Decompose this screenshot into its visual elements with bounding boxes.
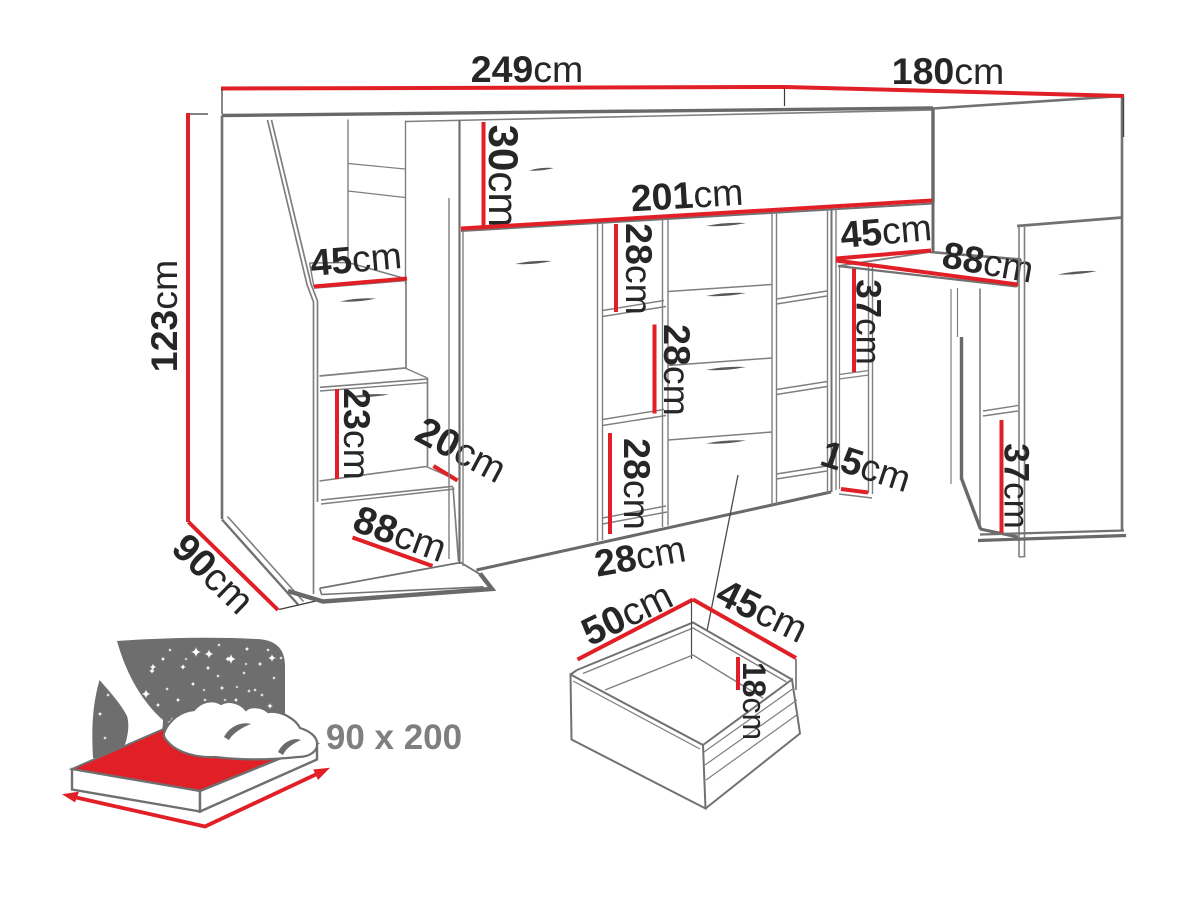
svg-text:28cm: 28cm: [656, 324, 698, 416]
svg-text:249cm: 249cm: [471, 48, 584, 90]
svg-text:23cm: 23cm: [336, 388, 378, 480]
svg-text:123cm: 123cm: [143, 260, 185, 373]
svg-text:28cm: 28cm: [618, 223, 660, 315]
svg-text:37cm: 37cm: [997, 443, 1036, 529]
svg-text:45cm: 45cm: [838, 206, 933, 256]
svg-text:45cm: 45cm: [308, 234, 403, 284]
svg-text:28cm: 28cm: [616, 438, 658, 530]
svg-text:180cm: 180cm: [892, 50, 1005, 92]
svg-text:30cm: 30cm: [480, 125, 527, 228]
svg-text:201cm: 201cm: [630, 171, 745, 220]
svg-text:37cm: 37cm: [849, 279, 888, 365]
svg-text:18cm: 18cm: [736, 662, 772, 740]
svg-text:90 x 200: 90 x 200: [326, 718, 462, 757]
